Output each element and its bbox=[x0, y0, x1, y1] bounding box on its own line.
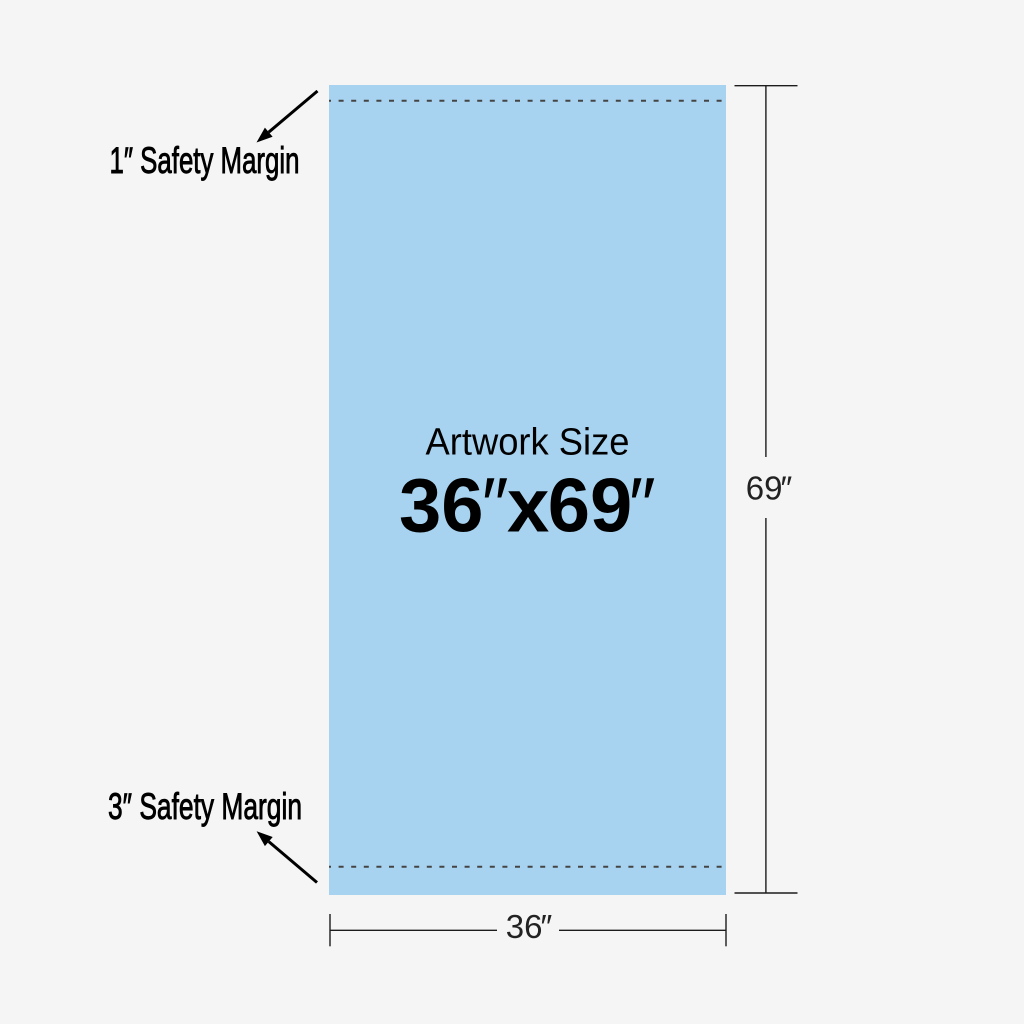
svg-text:3″ Safety Margin: 3″ Safety Margin bbox=[108, 786, 302, 827]
svg-text:36″: 36″ bbox=[506, 908, 553, 945]
svg-text:36″x69″: 36″x69″ bbox=[399, 463, 656, 549]
svg-text:Artwork Size: Artwork Size bbox=[426, 422, 630, 464]
svg-text:1″ Safety Margin: 1″ Safety Margin bbox=[110, 140, 300, 181]
svg-text:69″: 69″ bbox=[746, 470, 793, 507]
